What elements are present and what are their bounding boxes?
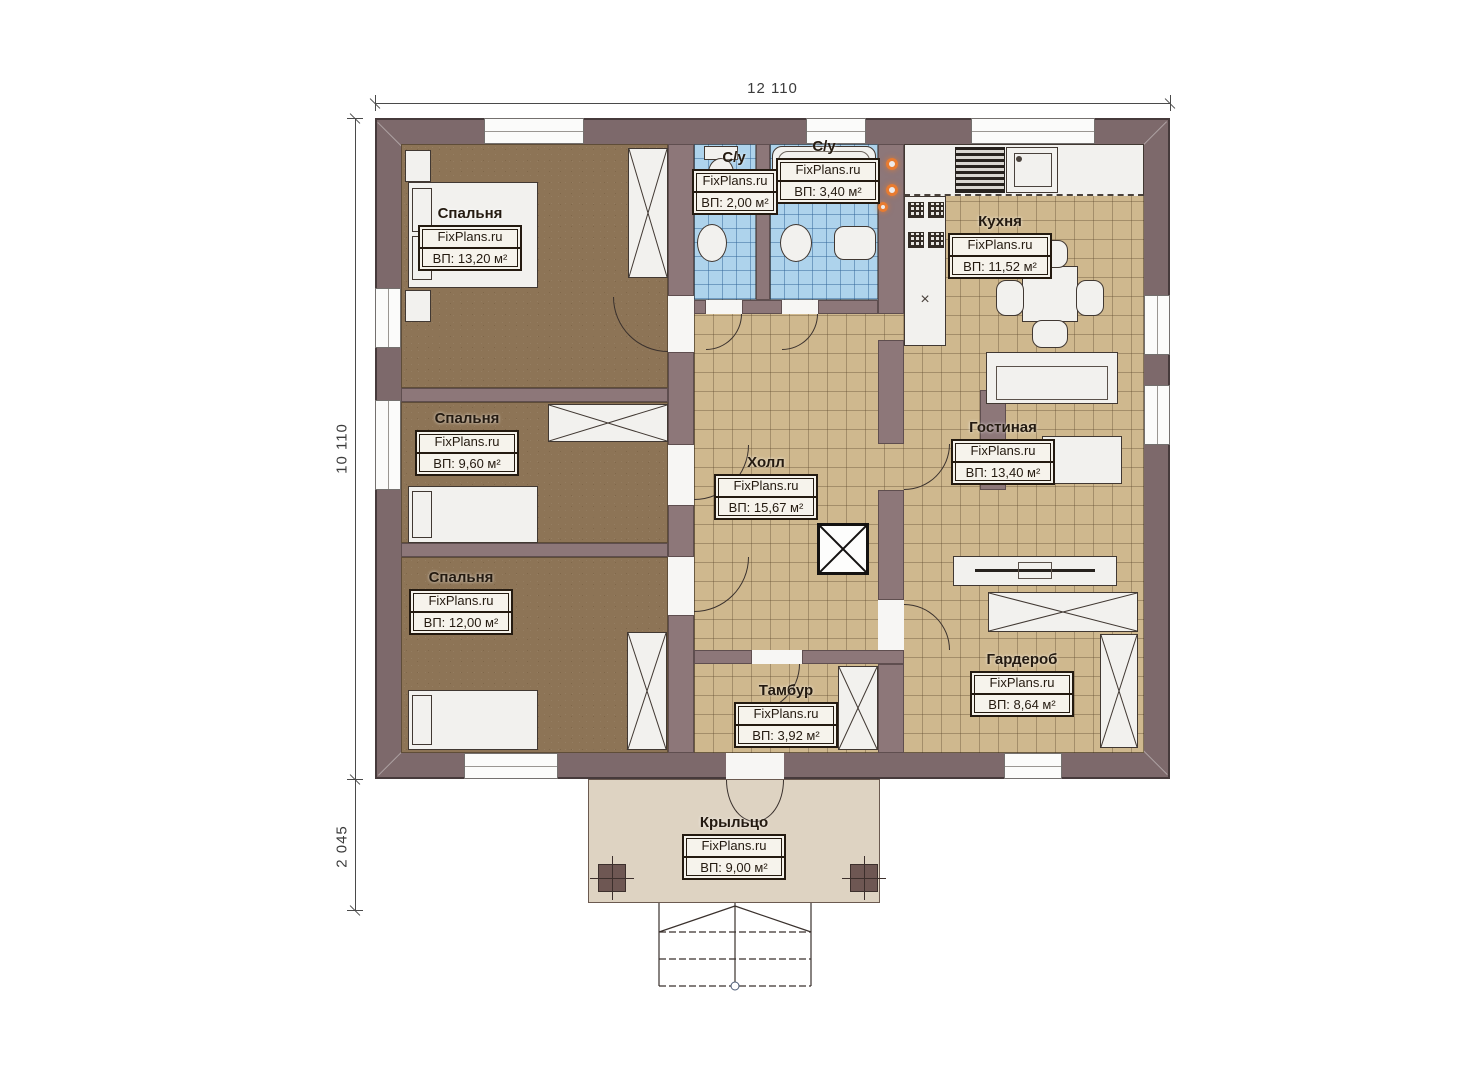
window (1144, 295, 1170, 355)
room-name: С/у (692, 149, 776, 166)
room-name: Спальня (397, 410, 537, 427)
room-name: Холл (696, 454, 836, 471)
room-area: ВП: 13,40 м² (953, 463, 1053, 483)
wardrobe-cabinet (988, 592, 1138, 632)
room-label-living-room: Гостиная FixPlans.ru ВП: 13,40 м² (933, 419, 1073, 485)
watermark-brand: FixPlans.ru (950, 235, 1050, 257)
room-name: С/у (776, 138, 872, 155)
room-label-bathroom-large: С/у FixPlans.ru ВП: 3,40 м² (776, 138, 872, 204)
stove-burner (908, 202, 924, 218)
door-opening (668, 557, 694, 615)
wall-segment (401, 543, 668, 557)
watermark-box: FixPlans.ru ВП: 13,20 м² (418, 225, 522, 271)
dimension-line-top (375, 103, 1170, 104)
pillow (412, 695, 432, 745)
watermark-brand: FixPlans.ru (778, 160, 878, 182)
room-area: ВП: 15,67 м² (716, 498, 816, 518)
water-heater-icon (886, 158, 898, 170)
wall-segment (401, 388, 668, 402)
room-label-bedroom2: Спальня FixPlans.ru ВП: 9,60 м² (397, 410, 537, 476)
window (1144, 385, 1170, 445)
kitchen-faucet (1016, 156, 1022, 162)
room-area: ВП: 12,00 м² (411, 613, 511, 633)
tv-base (1018, 562, 1052, 579)
window (484, 118, 584, 144)
watermark-box: FixPlans.ru ВП: 8,64 м² (970, 671, 1074, 717)
watermark-box: FixPlans.ru ВП: 9,60 м² (415, 430, 519, 476)
door-opening (668, 445, 694, 505)
sink (697, 224, 727, 262)
chair (1032, 320, 1068, 348)
dimension-total-width: 12 110 (375, 80, 1170, 97)
sofa-seat (996, 366, 1108, 400)
room-label-vestibule: Тамбур FixPlans.ru ВП: 3,92 м² (716, 682, 856, 748)
room-label-hall: Холл FixPlans.ru ВП: 15,67 м² (696, 454, 836, 520)
watermark-brand: FixPlans.ru (736, 704, 836, 726)
window (971, 118, 1095, 144)
room-name: Тамбур (716, 682, 856, 699)
watermark-brand: FixPlans.ru (972, 673, 1072, 695)
window (464, 753, 558, 779)
wardrobe-cabinet (628, 148, 668, 278)
room-name: Гостиная (933, 419, 1073, 436)
room-name: Кухня (930, 213, 1070, 230)
chair (996, 280, 1024, 316)
room-area: ВП: 9,60 м² (417, 454, 517, 474)
nightstand (405, 150, 431, 182)
wall-segment (878, 490, 904, 600)
chair (1076, 280, 1104, 316)
watermark-box: FixPlans.ru ВП: 13,40 м² (951, 439, 1055, 485)
watermark-box: FixPlans.ru ВП: 3,92 м² (734, 702, 838, 748)
room-label-kitchen: Кухня FixPlans.ru ВП: 11,52 м² (930, 213, 1070, 279)
floor-plan-canvas: 12 110 10 110 2 045 (0, 0, 1473, 1080)
dimension-line-left-porch (355, 779, 356, 910)
door-opening (706, 300, 742, 314)
watermark-brand: FixPlans.ru (411, 591, 511, 613)
wall-segment (668, 615, 694, 753)
porch-column (850, 864, 878, 892)
sink (780, 224, 812, 262)
counter-x-mark: × (904, 290, 946, 310)
wall-segment (694, 300, 706, 314)
room-area: ВП: 3,92 м² (736, 726, 836, 746)
bidet (834, 226, 876, 260)
wall-segment (878, 340, 904, 444)
wall-segment (742, 300, 782, 314)
room-label-wardrobe-room: Гардероб FixPlans.ru ВП: 8,64 м² (952, 651, 1092, 717)
wall-segment (668, 352, 694, 445)
entry-door-opening (726, 753, 784, 779)
room-area: ВП: 11,52 м² (950, 257, 1050, 277)
wall-segment (802, 650, 904, 664)
door-opening (878, 600, 904, 650)
watermark-box: FixPlans.ru ВП: 15,67 м² (714, 474, 818, 520)
wall-segment (668, 144, 694, 296)
watermark-box: FixPlans.ru ВП: 9,00 м² (682, 834, 786, 880)
room-name: Крыльцо (664, 814, 804, 831)
kitchen-appliance (955, 147, 1005, 193)
wall-segment (694, 650, 752, 664)
watermark-brand: FixPlans.ru (420, 227, 520, 249)
room-area: ВП: 2,00 м² (694, 193, 776, 213)
dimension-porch-depth: 2 045 (334, 815, 351, 879)
watermark-box: FixPlans.ru ВП: 3,40 м² (776, 158, 880, 204)
wall-segment (818, 300, 878, 314)
room-name: Спальня (391, 569, 531, 586)
porch-steps (658, 903, 812, 995)
window (375, 288, 401, 348)
watermark-brand: FixPlans.ru (684, 836, 784, 858)
wardrobe-cabinet (1100, 634, 1138, 748)
door-opening (782, 300, 818, 314)
watermark-brand: FixPlans.ru (417, 432, 517, 454)
chimney-shaft (817, 523, 869, 575)
dimension-line-left-main (355, 118, 356, 779)
room-name: Спальня (400, 205, 540, 222)
room-name: Гардероб (952, 651, 1092, 668)
watermark-box: FixPlans.ru ВП: 11,52 м² (948, 233, 1052, 279)
room-area: ВП: 9,00 м² (684, 858, 784, 878)
room-label-bathroom-small: С/у FixPlans.ru ВП: 2,00 м² (692, 149, 776, 215)
room-label-bedroom1: Спальня FixPlans.ru ВП: 13,20 м² (400, 205, 540, 271)
watermark-box: FixPlans.ru ВП: 12,00 м² (409, 589, 513, 635)
room-area: ВП: 8,64 м² (972, 695, 1072, 715)
pillow (412, 491, 432, 538)
wardrobe-cabinet (627, 632, 667, 750)
room-label-porch: Крыльцо FixPlans.ru ВП: 9,00 м² (664, 814, 804, 880)
porch-column (598, 864, 626, 892)
wardrobe-cabinet (548, 404, 668, 442)
dimension-main-depth: 10 110 (334, 417, 351, 481)
watermark-box: FixPlans.ru ВП: 2,00 м² (692, 169, 778, 215)
door-opening (668, 296, 694, 352)
room-area: ВП: 3,40 м² (778, 182, 878, 202)
watermark-brand: FixPlans.ru (694, 171, 776, 193)
water-heater-icon (886, 184, 898, 196)
door-opening (752, 650, 802, 664)
watermark-brand: FixPlans.ru (716, 476, 816, 498)
wall-segment (878, 664, 904, 753)
room-area: ВП: 13,20 м² (420, 249, 520, 269)
watermark-brand: FixPlans.ru (953, 441, 1053, 463)
wall-segment (668, 505, 694, 557)
stove-burner (908, 232, 924, 248)
window (1004, 753, 1062, 779)
nightstand (405, 290, 431, 322)
room-label-bedroom3: Спальня FixPlans.ru ВП: 12,00 м² (391, 569, 531, 635)
